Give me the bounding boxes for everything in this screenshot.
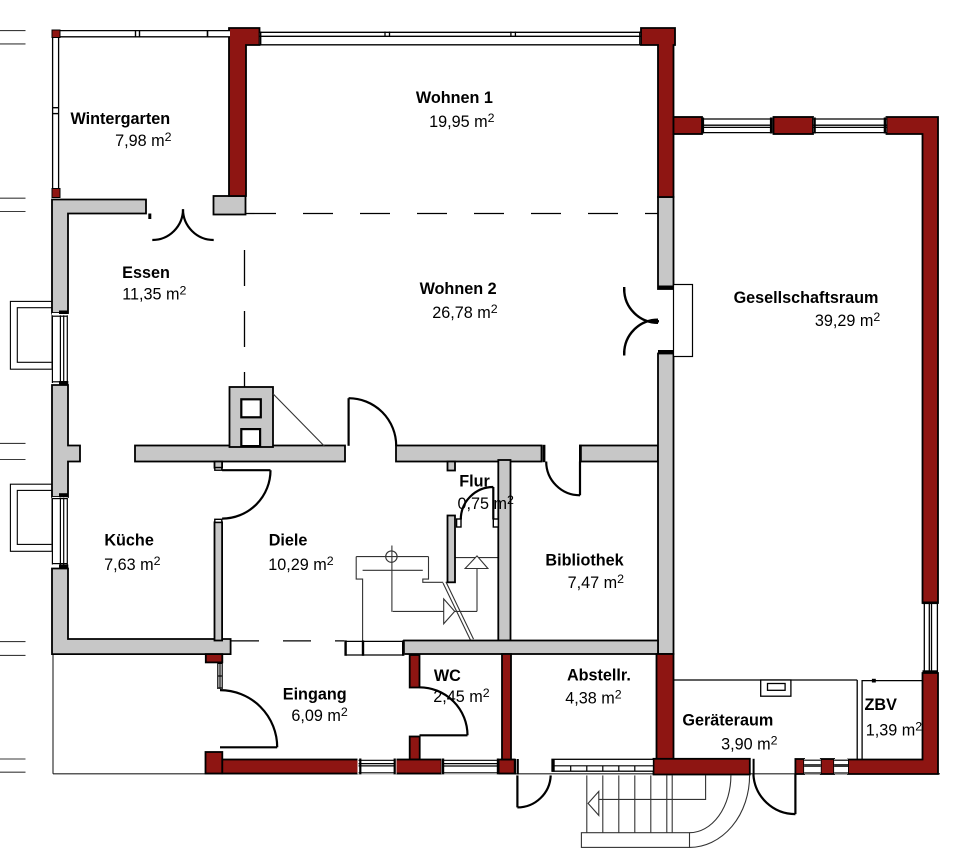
svg-text:Eingang: Eingang <box>283 686 347 704</box>
svg-text:Flur: Flur <box>459 472 490 490</box>
svg-text:6,09 m2: 6,09 m2 <box>291 705 348 725</box>
svg-text:26,78 m2: 26,78 m2 <box>432 302 498 322</box>
svg-text:39,29 m2: 39,29 m2 <box>815 310 881 330</box>
svg-text:19,95 m2: 19,95 m2 <box>429 111 495 131</box>
svg-text:2,45 m2: 2,45 m2 <box>433 686 490 706</box>
svg-text:7,63 m2: 7,63 m2 <box>104 554 161 574</box>
svg-text:Geräteraum: Geräteraum <box>682 712 773 730</box>
svg-text:11,35 m2: 11,35 m2 <box>122 283 186 303</box>
svg-text:1,39 m2: 1,39 m2 <box>866 720 923 740</box>
svg-text:Wohnen 1: Wohnen 1 <box>416 89 493 107</box>
svg-text:7,47 m2: 7,47 m2 <box>568 572 625 592</box>
svg-text:Diele: Diele <box>269 532 308 550</box>
svg-text:Abstellr.: Abstellr. <box>567 667 631 685</box>
svg-text:3,90 m2: 3,90 m2 <box>721 734 778 754</box>
svg-text:Essen: Essen <box>122 264 170 282</box>
svg-text:10,29 m2: 10,29 m2 <box>268 554 334 574</box>
svg-text:Wohnen 2: Wohnen 2 <box>420 280 497 298</box>
svg-text:WC: WC <box>434 667 461 685</box>
svg-text:4,38 m2: 4,38 m2 <box>565 687 622 707</box>
svg-text:Wintergarten: Wintergarten <box>70 110 170 128</box>
svg-text:Küche: Küche <box>104 532 153 550</box>
svg-text:7,98 m2: 7,98 m2 <box>115 130 172 150</box>
svg-text:Gesellschaftsraum: Gesellschaftsraum <box>734 289 879 307</box>
svg-text:0,75 m2: 0,75 m2 <box>457 493 514 513</box>
svg-text:Bibliothek: Bibliothek <box>545 551 624 569</box>
svg-text:ZBV: ZBV <box>865 696 898 714</box>
